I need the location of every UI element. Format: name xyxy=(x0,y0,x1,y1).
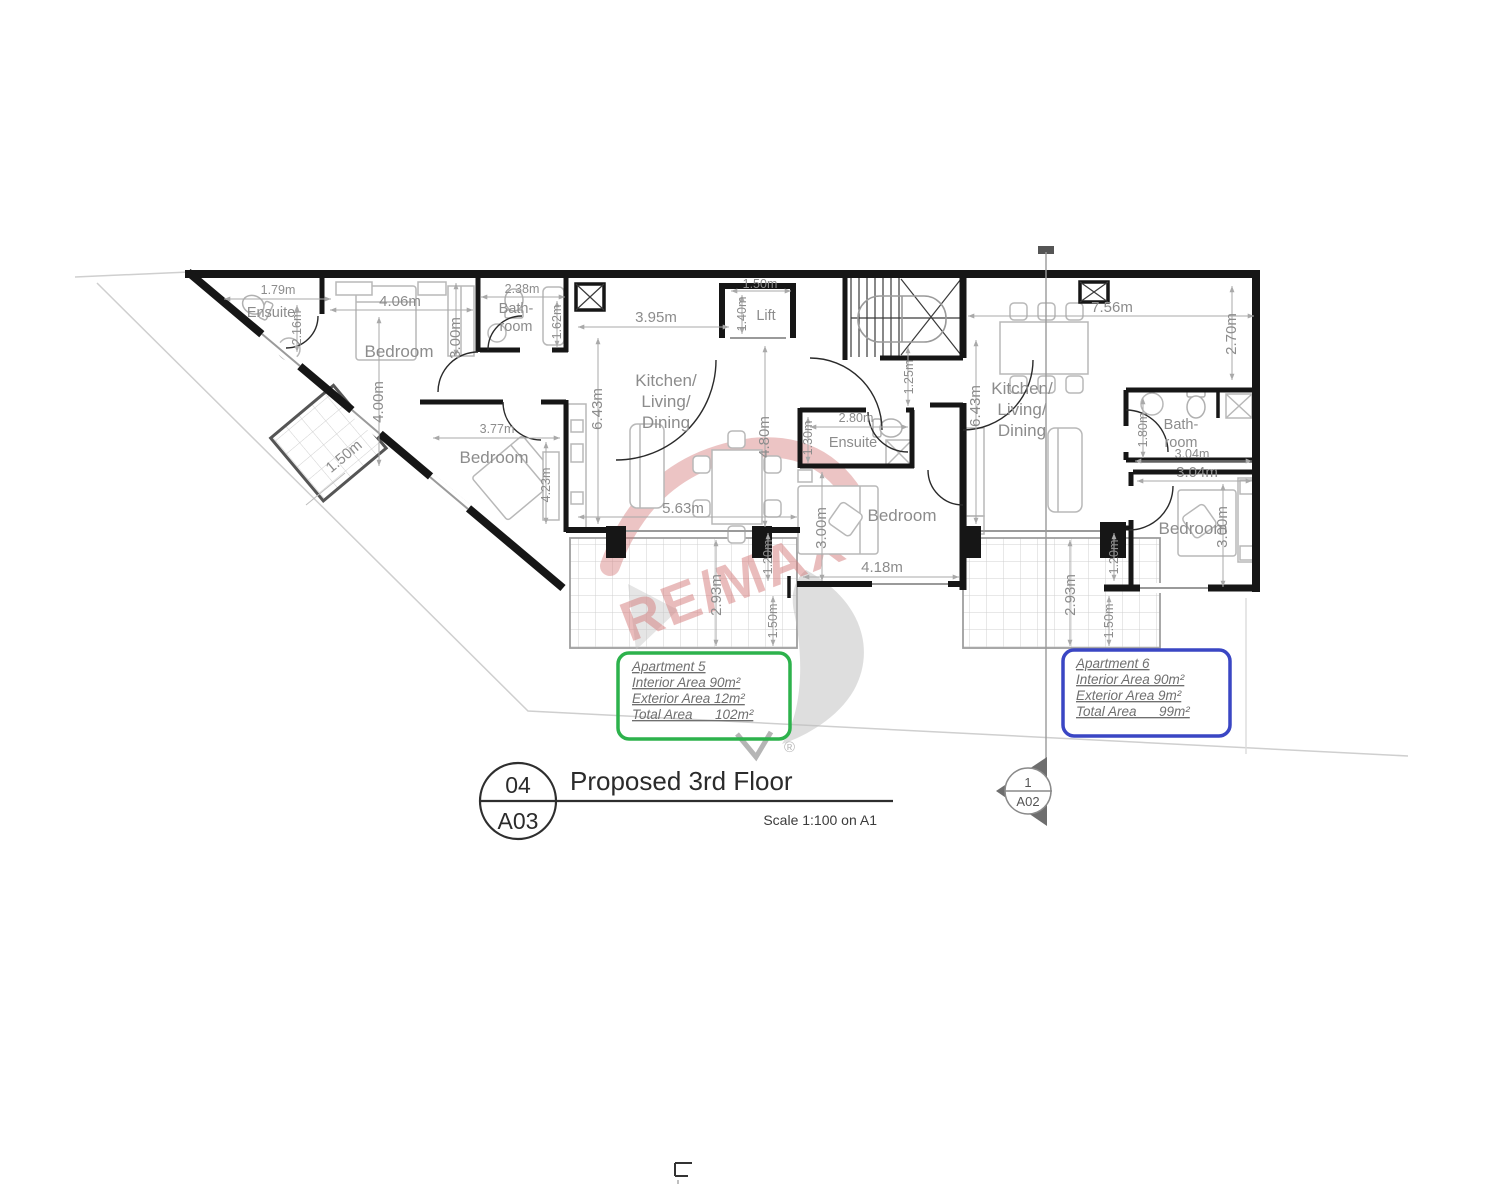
plot-mark xyxy=(675,1163,692,1184)
room-label-bathroom2-line2: room xyxy=(1164,435,1197,451)
balcony-tiles xyxy=(271,385,387,501)
stairs-symbol xyxy=(851,277,961,357)
dim-bedroom3-width: 4.18m xyxy=(861,559,903,576)
dim-bedroom2-depth: 4.23m xyxy=(539,468,553,503)
dim-bedroom3-depth: 3.00m xyxy=(813,507,830,549)
dim-ensuite2-depth: 1.30m xyxy=(801,421,815,456)
title-block: 04 A03 Proposed 3rd Floor Scale 1:100 on… xyxy=(480,763,893,839)
apartment6-name: Apartment 6 xyxy=(1075,656,1150,671)
room-label-kitchen2-line3: Dining xyxy=(998,421,1046,440)
dim-kitchen2-width: 7.56m xyxy=(1091,299,1133,316)
room-label-kitchen2-line2: Living/ xyxy=(997,400,1046,419)
dim-bathroom1-depth: 1.62m xyxy=(550,305,564,340)
room-label-bedroom1: Bedroom xyxy=(365,342,434,361)
dim-lift-depth: 1.40m xyxy=(735,297,749,332)
apartment6-interior-area: Interior Area 90m² xyxy=(1076,672,1185,687)
dim-terrace2-depth: 2.93m xyxy=(1062,574,1079,616)
dim-lift-width: 1.50m xyxy=(743,277,778,291)
dim-bedroom1-depth: 3.00m xyxy=(447,317,464,359)
room-label-bathroom2-line1: Bath- xyxy=(1164,417,1199,433)
dim-terrace2-edge: 1.50m xyxy=(1102,604,1116,639)
apartment5-info-box: Apartment 5 Interior Area 90m² Exterior … xyxy=(618,653,790,739)
dim-terrace2-recess: 1.20m xyxy=(1107,540,1121,575)
apartment6-exterior-area: Exterior Area 9m² xyxy=(1076,688,1182,703)
dim-terrace1-depth: 2.93m xyxy=(708,574,725,616)
dim-bedroom2-width: 3.77m xyxy=(480,422,515,436)
scale-note: Scale 1:100 on A1 xyxy=(763,812,877,828)
floor-plan-drawing: RE/MAX ® xyxy=(0,0,1500,1200)
room-label-bedroom4: Bedroom xyxy=(1159,519,1228,538)
registered-trademark-icon: ® xyxy=(784,739,795,756)
room-label-kitchen1-line2: Living/ xyxy=(641,392,690,411)
dim-kitchen1-depth: 6.43m xyxy=(589,388,606,430)
room-label-bathroom1-line1: Bath- xyxy=(499,301,534,317)
dim-kitchen1-inner: 4.80m xyxy=(756,416,773,458)
dim-kitchen2-depth: 6.43m xyxy=(967,385,984,427)
floor-plan-page: RE/MAX ® xyxy=(0,0,1500,1200)
room-label-ensuite2: Ensuite xyxy=(829,435,877,451)
apartment5-interior-area: Interior Area 90m² xyxy=(632,675,741,690)
drawing-title: Proposed 3rd Floor xyxy=(570,766,793,796)
dim-ensuite1-width: 1.79m xyxy=(261,283,296,297)
room-label-ensuite1: Ensuite xyxy=(247,305,295,321)
room-label-lift: Lift xyxy=(756,308,775,324)
dim-terrace1-recess: 1.20m xyxy=(761,540,775,575)
section-sheet-ref: A02 xyxy=(1016,794,1039,809)
room-label-kitchen1-line3: Dining xyxy=(642,413,690,432)
dim-ensuite2-width: 2.80m xyxy=(839,411,874,425)
dim-bedroom4-width: 3.04m xyxy=(1176,464,1218,481)
room-label-bedroom3: Bedroom xyxy=(868,506,937,525)
dim-bedroom1-length: 4.00m xyxy=(370,381,387,423)
room-label-kitchen2-line1: Kitchen/ xyxy=(991,379,1053,398)
apartment5-total-area: Total Area 102m² xyxy=(632,707,754,722)
apartment5-exterior-area: Exterior Area 12m² xyxy=(632,691,745,706)
dim-kitchen1-width: 3.95m xyxy=(635,309,677,326)
room-label-bathroom1-line2: room xyxy=(499,319,532,335)
section-number: 1 xyxy=(1024,775,1031,790)
watermark-balloon-body xyxy=(782,570,864,744)
room-label-kitchen1-line1: Kitchen/ xyxy=(635,371,697,390)
apartment6-total-area: Total Area 99m² xyxy=(1076,704,1190,719)
dim-bedroom1-width: 4.06m xyxy=(379,293,421,310)
apartment5-name: Apartment 5 xyxy=(631,659,706,674)
apartment6-info-box: Apartment 6 Interior Area 90m² Exterior … xyxy=(1063,650,1230,736)
sheet-ref: A03 xyxy=(498,808,539,834)
watermark-basket xyxy=(737,732,771,757)
dim-bathroom1-width: 2.38m xyxy=(505,282,540,296)
detail-number: 04 xyxy=(505,772,531,798)
room-label-bedroom2: Bedroom xyxy=(460,448,529,467)
dim-bathroom2-depth: 1.80m xyxy=(1136,413,1150,448)
dim-landing-width: 1.25m xyxy=(902,360,916,395)
dim-terrace1-edge: 1.50m xyxy=(766,604,780,639)
dim-kitchen2-recess: 2.70m xyxy=(1223,313,1240,355)
dim-kitchen1-length: 5.63m xyxy=(662,500,704,517)
